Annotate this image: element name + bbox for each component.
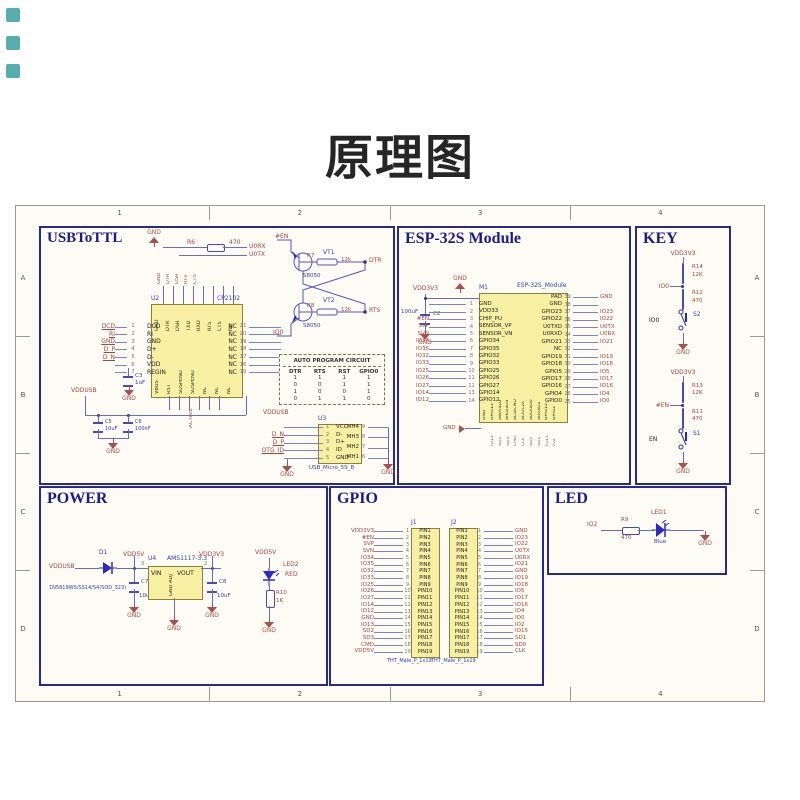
table-cell: 1 <box>283 375 308 381</box>
gnd-flag-right: GND <box>443 426 456 432</box>
pin-row: D_P 4 D+ <box>91 347 183 353</box>
corner-mark <box>6 64 20 78</box>
pin-row: GPIO23 37 IO23 <box>517 310 624 316</box>
pin-row: IO25 10 GPIO25 <box>405 369 525 375</box>
net-label: DTR <box>166 260 175 284</box>
transistor-ref: VT1 <box>323 250 335 256</box>
frame-col-label: 3 <box>391 687 571 701</box>
pin-name: TXD <box>187 307 198 331</box>
resistor-icon <box>682 408 684 429</box>
gnd-symbol: GND <box>260 618 278 635</box>
resistor-value: 12k <box>341 308 351 314</box>
pin-row: PIN10 10 IO5 <box>449 589 539 595</box>
pin-row: DCD 1 DCD <box>91 324 183 330</box>
resistor-value: 470 <box>621 536 632 542</box>
wire <box>163 247 207 248</box>
header-refdes: J2 <box>451 520 457 526</box>
pin-name: SUSPEND <box>191 369 203 394</box>
pin-row: IO34 5 PIN5 <box>334 556 438 562</box>
resistor-value: 470 <box>229 240 240 246</box>
page-title: 原理图 <box>0 118 800 188</box>
net-label: RTS <box>184 260 193 284</box>
usb-micro-right-pins: MH4 9 MH3 8 MH2 7 MH1 6 <box>333 425 389 461</box>
gnd-symbol: GND <box>674 340 692 357</box>
pin-row: RI 2 RI <box>91 332 183 338</box>
pin-row: MH2 7 <box>333 445 389 451</box>
switch-icon <box>676 428 690 450</box>
frame-col-label: 4 <box>571 206 750 220</box>
pin-row: NC 17 <box>209 355 281 361</box>
net-label: U0TX <box>249 252 265 258</box>
regulator-refdes: U4 <box>148 556 156 562</box>
pin-row: PIN4 4 U0TX <box>449 549 539 555</box>
table-cell: 0 <box>332 389 357 395</box>
transistor-ref: VT2 <box>323 298 335 304</box>
resistor-icon <box>682 263 684 284</box>
frame-ruler-right: ABCD <box>749 220 764 687</box>
gnd-symbol: GND <box>203 603 221 620</box>
pin-row: PAD 39 GND <box>517 295 624 301</box>
gnd-symbol: GND <box>696 531 714 548</box>
cp2102-left-pins: DCD 1 DCD RI 2 RI GND 3 GND D_P <box>91 324 183 376</box>
pin-row: IO35 6 PIN6 <box>334 562 438 568</box>
frame-ruler-top: 1234 <box>30 206 750 221</box>
gnd-symbol: GND <box>120 386 138 403</box>
schematic-sheet: 1234 1234 ABCD ABCD USBToTTL GND R6 470 … <box>15 205 765 702</box>
section-led: LED IO2 R9 470 LED1 Blue GND <box>547 486 727 575</box>
connector-part: USB_Micro_5S_B <box>309 466 354 472</box>
corner-mark <box>6 8 20 22</box>
pin-row: VDD3V3 1 PIN1 <box>334 529 438 535</box>
frame-col-label: 2 <box>210 687 390 701</box>
pin-row: PIN17 17 SD1 <box>449 636 539 642</box>
pin-row: IO25 9 PIN9 <box>334 583 438 589</box>
power-flag: VDDUSB <box>263 410 289 416</box>
pin-name: RXD <box>197 307 208 331</box>
pin-name: SCS/CMD <box>514 380 522 420</box>
switch-icon <box>676 309 690 331</box>
frame-row-label: A <box>750 220 764 337</box>
net-label: RTS <box>369 308 380 314</box>
wire <box>223 247 247 248</box>
chip-refdes: M1 <box>479 285 488 291</box>
pin-row: IO32 7 PIN7 <box>334 569 438 575</box>
table-cell: 1 <box>357 382 382 388</box>
pin-row: GPIO5 29 IO5 <box>517 370 624 376</box>
power-flag: VDD3V3 <box>413 286 438 292</box>
table-cell: 0 <box>283 396 308 402</box>
frame-col-label: 3 <box>391 206 571 220</box>
pin-name: GND <box>483 380 491 420</box>
capacitor-ref: C3 <box>135 374 142 380</box>
resistor-ref: R7 <box>307 254 314 260</box>
frame-row-label: D <box>750 571 764 687</box>
pin-row: PIN15 15 IO2 <box>449 623 539 629</box>
pin-row: PIN16 16 IO15 <box>449 629 539 635</box>
header-part: THT_Male_P_1x19 <box>431 659 476 664</box>
esp-bottom-nets: IO13SD2SD3CMDCLKSD0SD1IO15IO2 <box>491 424 561 446</box>
pin-row: D_N 5 D- <box>91 355 183 361</box>
pin-row: CMD 18 PIN18 <box>334 643 438 649</box>
pin-row: #EN 2 PIN2 <box>334 536 438 542</box>
table-cell: 0 <box>308 382 333 388</box>
net-label: IO2 <box>587 522 597 528</box>
pin-row: PIN5 5 U0RX <box>449 556 539 562</box>
led-ref: LED2 <box>283 562 299 568</box>
resistor-icon <box>266 590 275 608</box>
table-cell: 0 <box>283 382 308 388</box>
pin-name: GPIO13 <box>491 380 499 420</box>
section-title: GPIO <box>337 490 378 508</box>
pin-row: IO34 6 GPIO34 <box>405 339 525 345</box>
schematic-canvas: USBToTTL GND R6 470 U0RX U0TX GNDDTRDSRR… <box>30 220 750 687</box>
led-color: Blue <box>654 540 666 546</box>
net-label: IO2 <box>553 424 561 446</box>
push-button: IO0 S2 <box>637 309 729 333</box>
pin-name: SCK/CLK <box>522 380 530 420</box>
table-cell: 1 <box>308 375 333 381</box>
table-cell: 1 <box>332 375 357 381</box>
wire <box>179 255 247 256</box>
pin-row: NC 16 <box>209 362 281 368</box>
pin-row: IO14 12 PIN12 <box>334 603 438 609</box>
pin-row: GPIO21 33 IO21 <box>517 340 624 346</box>
resistor-icon <box>622 527 640 535</box>
pin-name: SDO/SD0 <box>530 380 538 420</box>
table-cell: 1 <box>283 389 308 395</box>
power-flag: VDDUSB <box>71 388 97 394</box>
net-label: GND <box>157 260 166 284</box>
table-cells: 1111001110010110 <box>283 375 381 402</box>
push-button: EN S1 <box>637 428 729 452</box>
resistor-ref: R9 <box>621 518 628 524</box>
pin-row: 1 GND <box>405 302 525 308</box>
pin-row: SVP 4 SENSOR_VP <box>405 324 525 330</box>
gnd-flag-icon: GND <box>451 276 469 293</box>
pin-number: 3 <box>141 562 144 567</box>
led-ref: LED1 <box>651 510 667 516</box>
pin-row: VDD5V 19 PIN19 <box>334 649 438 655</box>
gnd-symbol: GND <box>278 462 296 479</box>
resistor-ref: R6 <box>187 240 195 246</box>
pin-row: PIN7 7 GND <box>449 569 539 575</box>
section-esp32s: ESP-32S Module VDD3V3 100uF C2 GND GND M… <box>397 226 631 485</box>
net-label: SD0 <box>530 424 538 446</box>
net-label: IO13 <box>491 424 499 446</box>
pin-row: PIN6 6 IO21 <box>449 562 539 568</box>
section-usbtottl: USBToTTL GND R6 470 U0RX U0TX GNDDTRDSRR… <box>39 226 395 485</box>
section-title: LED <box>555 490 588 508</box>
pin-name: GND ADJ <box>169 572 177 596</box>
capacitor-ref: C5 <box>105 420 112 425</box>
frame-col-label: 2 <box>210 206 390 220</box>
led-color: RED <box>285 572 298 578</box>
pin-row: PIN12 12 IO16 <box>449 603 539 609</box>
pin-row: MH3 8 <box>333 435 389 441</box>
gnd-symbol: GND <box>165 616 183 633</box>
pin-row: IO27 11 PIN11 <box>334 596 438 602</box>
pin-row: PIN1 1 GND <box>449 529 539 535</box>
chip-part: ESP-32S_Module <box>517 283 567 289</box>
pin-row: PIN13 13 IO4 <box>449 609 539 615</box>
table-cell: 1 <box>357 389 382 395</box>
pin-row: PIN14 14 IO0 <box>449 616 539 622</box>
pin-name: VIN <box>151 571 161 577</box>
pin-row: SVP 3 PIN3 <box>334 542 438 548</box>
pin-row: GPIO22 36 IO22 <box>517 317 624 323</box>
pin-row: IO33 9 GPIO33 <box>405 361 525 367</box>
pin-row: PIN11 11 IO17 <box>449 596 539 602</box>
resistor-icon <box>682 289 684 310</box>
frame-ruler-left: ABCD <box>16 220 31 687</box>
pin-row: IO13 15 PIN15 <box>334 623 438 629</box>
gnd-symbol: GND <box>379 460 397 477</box>
net-label: IO0 <box>273 330 283 336</box>
led-icon <box>261 568 279 586</box>
chip-part: CP2102 <box>217 296 240 302</box>
pin-row: 2 VDD33 <box>405 309 525 315</box>
resistor: R1312K <box>682 383 684 402</box>
pin-row: #EN 3 CHIP_PU <box>405 317 525 323</box>
table-cell: 1 <box>357 375 382 381</box>
capacitor-value: 100nF <box>135 427 151 432</box>
chip-refdes: U2 <box>151 296 159 302</box>
header-refdes: J1 <box>411 520 417 526</box>
table-cell: 0 <box>308 389 333 395</box>
capacitor-value: 10uF <box>105 427 117 432</box>
gnd-arrow-icon <box>459 425 465 433</box>
capacitor-value: 10uF <box>217 594 231 600</box>
pin-name: VOUT <box>177 571 194 577</box>
frame-col-label: 1 <box>30 206 210 220</box>
frame-row-label: D <box>16 571 30 687</box>
pin-row: 6 VDD <box>91 362 183 368</box>
pin-row: IO35 7 GPIO35 <box>405 347 525 353</box>
header-part: THT_Male_P_1x19 <box>387 659 432 664</box>
frame-row-label: A <box>16 220 30 337</box>
corner-mark <box>6 36 20 50</box>
pin-row: NC 15 <box>209 370 281 376</box>
frame-col-label: 4 <box>571 687 750 701</box>
transistor-part: S8050 <box>303 324 321 330</box>
pin-row: SD2 16 PIN16 <box>334 629 438 635</box>
pin-row: SVN 4 PIN4 <box>334 549 438 555</box>
led-icon <box>652 520 672 540</box>
capacitor-ref: C8 <box>219 580 226 586</box>
gnd-flag-icon: GND <box>145 230 163 247</box>
pin-row: GND 14 PIN14 <box>334 616 438 622</box>
net-label: SD1 <box>538 424 546 446</box>
net-label: SD2 <box>499 424 507 446</box>
pin-name: GPIO15 <box>545 380 553 420</box>
esp-bottom-pins: GNDGPIO13SWP/SD2SHD/SD3SCS/CMDSCK/CLKSDO… <box>483 380 561 420</box>
resistor-icon <box>207 244 225 252</box>
resistor: R12470 <box>682 290 684 309</box>
frame-row-label: B <box>16 337 30 454</box>
resistor-ref: R8 <box>307 304 314 310</box>
pin-name: GPIO2 <box>553 380 561 420</box>
pin-row: NC 18 <box>209 347 281 353</box>
pin-row: U0TXD 35 U0TX <box>517 325 624 331</box>
diode-part: 1N5819WS/SS14/S4(SOD_323) <box>49 586 126 591</box>
pin-row: GND 38 <box>517 302 624 308</box>
net-label: ACTIVE <box>189 400 197 428</box>
pin-row: IO26 10 PIN10 <box>334 589 438 595</box>
pin-row: NC 32 <box>517 347 624 353</box>
gnd-symbol: GND <box>125 603 143 620</box>
section-gpio: GPIO J1 J2 VDD3V3 1 PIN1 #EN 2 PIN2 SVP <box>329 486 544 686</box>
section-title: USBToTTL <box>47 230 122 247</box>
pin-row: SVN 5 SENSOR_VN <box>405 332 525 338</box>
gnd-symbol: GND <box>674 459 692 476</box>
j1-pins: VDD3V3 1 PIN1 #EN 2 PIN2 SVP 3 PIN3 SVN <box>334 529 438 655</box>
resistor: R1412K <box>682 264 684 283</box>
pin-row: IO33 8 PIN8 <box>334 576 438 582</box>
diode-ref: D1 <box>99 550 107 556</box>
transistor-part: S8050 <box>303 274 321 280</box>
pin-row: PIN2 2 IO23 <box>449 536 539 542</box>
pin-row: PIN8 8 IO19 <box>449 576 539 582</box>
pin-row: IO12 13 PIN13 <box>334 609 438 615</box>
net-label: DTR <box>369 258 381 264</box>
key-circuit: VDD3V3 R1312K #EN R11470 EN <box>637 369 729 476</box>
net-label: U0RX <box>249 244 266 250</box>
key-circuit: VDD3V3 R1412K IO0 R12470 IO0 <box>637 250 729 357</box>
frame-row-label: B <box>750 337 764 454</box>
net-label: CLK <box>522 424 530 446</box>
power-flag: VDD5V <box>255 550 276 556</box>
diode-icon <box>99 561 117 575</box>
section-title: POWER <box>47 490 107 508</box>
net-label: CTS <box>193 260 202 284</box>
table-cell: 1 <box>332 382 357 388</box>
table-headers: DTRRTSRSTGPIO0 <box>283 366 381 375</box>
frame-row-label: C <box>750 454 764 571</box>
section-key: KEY VDD3V3 R1412K IO0 R12470 <box>635 226 731 485</box>
frame-ruler-bottom: 1234 <box>30 686 750 701</box>
section-title: ESP-32S Module <box>405 230 521 248</box>
table-cell: 0 <box>357 396 382 402</box>
gnd-symbol: GND <box>104 439 122 456</box>
pin-number: 2 <box>204 562 207 567</box>
cp2102-top-nets: GNDDTRDSRRTSCTS <box>157 260 202 284</box>
resistor-value: 12k <box>341 258 351 264</box>
table-cell: 1 <box>332 396 357 402</box>
table-title: AUTO PROGRAM CIRCUIT <box>283 358 381 364</box>
section-power: POWER VDDUSB D1 1N5819WS/SS14/S4(SOD_323… <box>39 486 328 686</box>
net-label: #EN <box>275 234 288 240</box>
frame-col-label: 1 <box>30 687 210 701</box>
table-cell: 1 <box>308 396 333 402</box>
connector-refdes: U3 <box>318 416 326 422</box>
pin-row: PIN9 9 IO18 <box>449 583 539 589</box>
j2-pins: PIN1 1 GND PIN2 2 IO23 PIN3 3 IO22 PIN4 <box>449 529 539 655</box>
pin-row: PIN18 18 SD0 <box>449 643 539 649</box>
net-label: DSR <box>175 260 184 284</box>
key-circuits: VDD3V3 R1412K IO0 R12470 IO0 <box>637 250 729 487</box>
pin-row: U0RXD 34 U0RX <box>517 332 624 338</box>
section-title: KEY <box>643 230 678 248</box>
pin-row: MH4 9 <box>333 425 389 431</box>
power-flag: VDDUSB <box>49 564 75 570</box>
frame-row-label: C <box>16 454 30 571</box>
resistor: R11470 <box>682 409 684 428</box>
pin-row: SD3 17 PIN17 <box>334 636 438 642</box>
capacitor-ref: C6 <box>135 420 142 425</box>
pin-row: GND 3 GND <box>91 339 183 345</box>
resistor-icon <box>682 382 684 403</box>
auto-program-table: AUTO PROGRAM CIRCUIT DTRRTSRSTGPIO0 1111… <box>279 354 385 405</box>
pin-row: GPIO18 30 IO18 <box>517 362 624 368</box>
pin-row: IO32 8 GPIO32 <box>405 354 525 360</box>
pin-row: PIN3 3 IO22 <box>449 542 539 548</box>
pin-row: PIN19 19 CLK <box>449 649 539 655</box>
pin-row: GPIO19 31 IO19 <box>517 355 624 361</box>
